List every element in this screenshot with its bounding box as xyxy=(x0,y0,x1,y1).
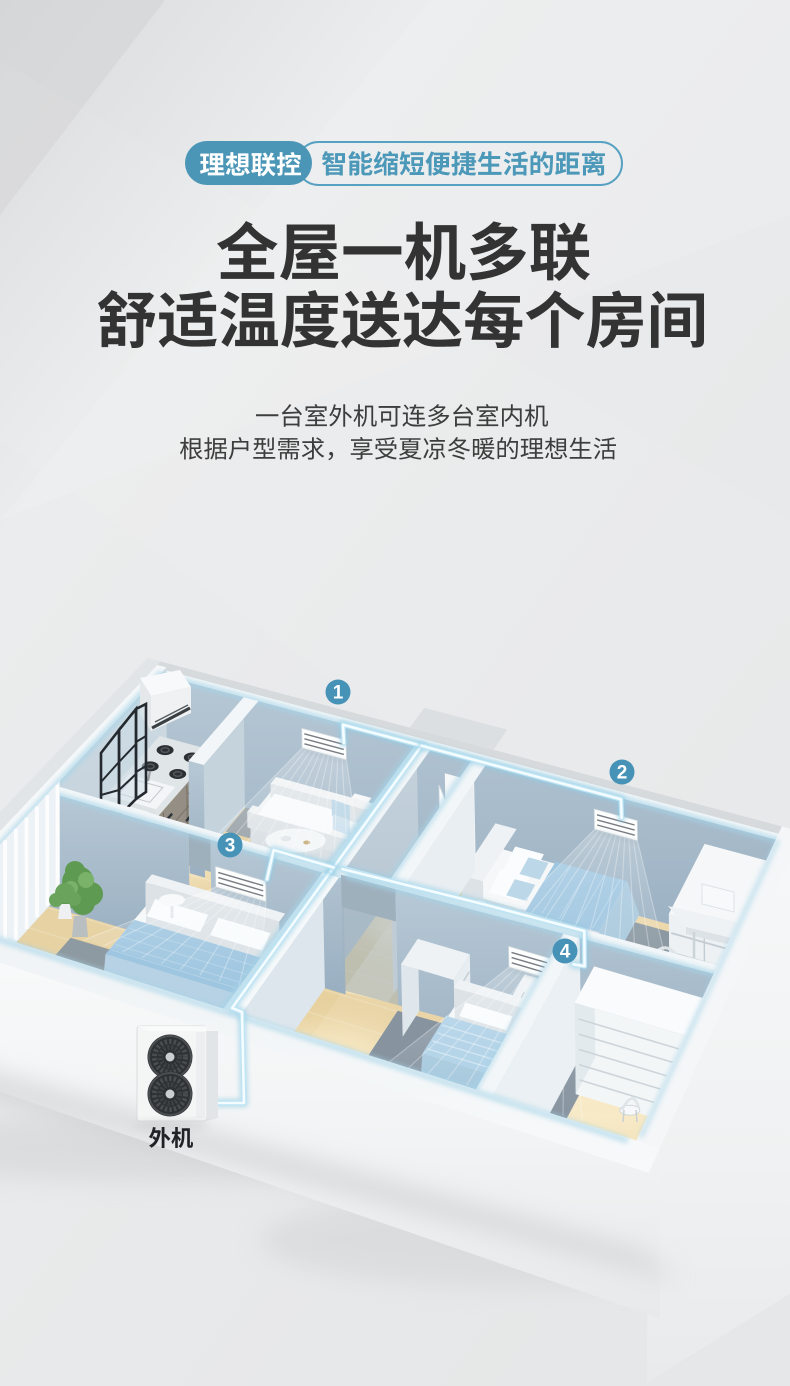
svg-text:2: 2 xyxy=(617,763,628,784)
svg-text:3: 3 xyxy=(225,836,236,857)
svg-text:4: 4 xyxy=(560,942,571,963)
svg-text:1: 1 xyxy=(333,683,344,704)
